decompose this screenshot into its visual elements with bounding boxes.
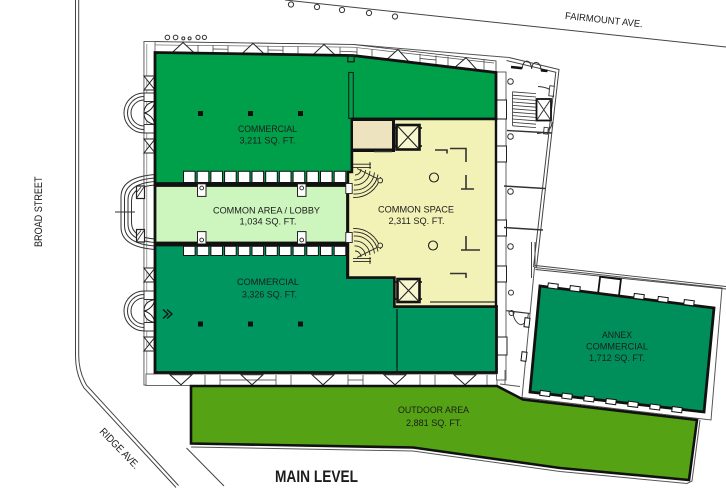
svg-text:MAIN LEVEL: MAIN LEVEL [275, 468, 358, 486]
svg-text:OUTDOOR AREA: OUTDOOR AREA [398, 405, 469, 415]
svg-text:1,712 SQ. FT.: 1,712 SQ. FT. [589, 353, 645, 363]
svg-text:COMMERCIAL: COMMERCIAL [238, 124, 297, 134]
svg-text:ANNEX: ANNEX [602, 330, 632, 340]
svg-text:3,211 SQ. FT.: 3,211 SQ. FT. [240, 136, 296, 146]
svg-text:RIDGE AVE.: RIDGE AVE. [97, 426, 142, 472]
svg-text:BROAD STREET: BROAD STREET [33, 176, 45, 247]
svg-text:FAIRMOUNT AVE.: FAIRMOUNT AVE. [564, 11, 643, 30]
svg-text:COMMON SPACE: COMMON SPACE [378, 205, 454, 215]
svg-text:COMMERCIAL: COMMERCIAL [237, 277, 299, 287]
svg-text:3,326 SQ. FT.: 3,326 SQ. FT. [242, 290, 297, 300]
svg-text:2,881 SQ. FT.: 2,881 SQ. FT. [406, 418, 462, 428]
svg-text:2,311 SQ. FT.: 2,311 SQ. FT. [389, 216, 445, 226]
svg-text:COMMERCIAL: COMMERCIAL [586, 342, 648, 352]
svg-text:COMMON AREA / LOBBY: COMMON AREA / LOBBY [213, 206, 320, 216]
svg-text:1,034 SQ. FT.: 1,034 SQ. FT. [240, 217, 297, 227]
